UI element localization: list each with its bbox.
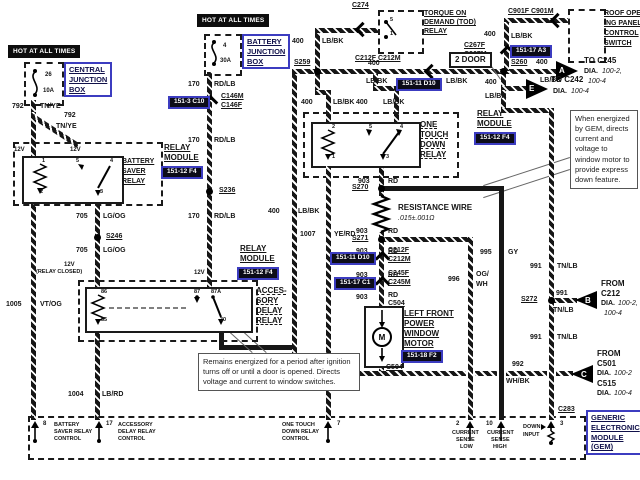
voltage-note: (RELAY CLOSED) — [36, 270, 82, 276]
tod-relay-label: TORQUE ON — [424, 10, 466, 17]
dia-ref: 100-4 — [614, 390, 632, 397]
splice-dot — [206, 188, 213, 195]
wire-number: 170 — [188, 213, 200, 220]
wire-color: RD/LB — [214, 213, 235, 220]
wire-segment — [95, 329, 100, 420]
wire-color: LG/OG — [103, 247, 126, 254]
label-line: BATTERY — [247, 37, 285, 47]
wire-segment — [292, 74, 297, 374]
resistance-wire-icon — [371, 196, 391, 232]
splice-label: S259 — [294, 59, 310, 66]
wire-color: LB/RD — [102, 391, 123, 398]
arrow-letter: B — [585, 296, 591, 305]
arrow-dest: FROM — [597, 350, 621, 358]
wire-number: 992 — [512, 361, 524, 368]
fuse-rating: 10A — [43, 88, 54, 94]
wire-color: RD — [388, 272, 398, 279]
gem-pin-label: BATTERY — [54, 423, 79, 429]
wire-color: RD/LB — [214, 137, 235, 144]
wire-color: LB/BK — [511, 33, 532, 40]
dia-ref: 100-2 — [614, 370, 632, 377]
wire-color: OG/ — [476, 271, 489, 278]
label-line: JUNCTION — [69, 75, 107, 85]
wire-segment-solid — [499, 186, 504, 420]
grid-ref-tag: 151-12 F4 — [161, 166, 203, 179]
splice-label: S260 — [511, 59, 527, 66]
accessory-delay-relay-label: DELAY — [256, 307, 282, 315]
gem-pin-hook-icon — [322, 419, 334, 443]
relay-module-label: MODULE — [164, 154, 199, 162]
fuse-number: 4 — [223, 43, 226, 49]
arrow-letter: C — [581, 370, 587, 379]
connector-label: C146M — [221, 93, 244, 100]
wire-number: 400 — [356, 99, 368, 106]
wire-color: WH — [476, 281, 488, 288]
connector-label: C274 — [352, 2, 369, 9]
label-line: MODULE — [591, 433, 640, 443]
hot-at-all-times-banner: HOT AT ALL TIMES — [197, 14, 269, 27]
gem-pin-label: CURRENT — [452, 431, 479, 437]
splice-dot — [314, 68, 321, 75]
relay-pin: 87A — [211, 290, 221, 296]
grid-ref-tag: 151-17 C1 — [334, 277, 376, 290]
connector-chevron-icon — [355, 22, 371, 38]
gem-pin-number: 17 — [106, 421, 113, 427]
splice-dot — [500, 68, 507, 75]
resistance-wire-value: .015±.001Ω — [398, 215, 434, 222]
voltage-label: 12V — [64, 262, 75, 268]
splice-label: S270 — [352, 184, 368, 191]
tod-relay-label: DEMAND (TOD) — [424, 19, 476, 26]
grid-ref-tag: 151-11 D10 — [396, 78, 442, 91]
dia-arrow-b: B — [575, 291, 597, 309]
relay-module-label: MODULE — [240, 255, 275, 263]
gem-pin-number: 3 — [560, 421, 563, 427]
wiring-diagram: HOT AT ALL TIMES CENTRAL JUNCTION BOX 26… — [0, 0, 640, 480]
one-touch-note: When energized by GEM, directs current a… — [570, 110, 638, 189]
connector-label: C245M — [388, 279, 411, 286]
wire-number: 1004 — [68, 391, 84, 398]
one-touch-relay-label: TOUCH — [420, 131, 448, 139]
roof-switch-label: ING PANEL — [604, 20, 640, 27]
relay-pin: 87 — [194, 290, 200, 296]
wire-color: RD — [388, 178, 398, 185]
relay-internals-icon — [378, 10, 420, 50]
relay-pin: 2 — [332, 125, 335, 131]
relay-pin: 1 — [332, 155, 335, 161]
one-touch-relay-label: DOWN — [420, 141, 445, 149]
arrow-dest: C501 — [597, 360, 616, 368]
roof-switch-label: ROOF OPEN- — [604, 10, 640, 17]
arrow-dest: C515 — [597, 380, 616, 388]
gem-pin-label: ONE TOUCH — [282, 423, 315, 429]
relay-pin: 5 — [390, 18, 393, 24]
gem-pin-label: SENSE — [456, 438, 475, 444]
arrow-dest: TO C245 — [584, 57, 616, 65]
fuse-rating: 30A — [220, 58, 231, 64]
gem-pin-number: 10 — [486, 421, 493, 427]
battery-saver-relay-label: BATTERY — [122, 158, 154, 165]
accessory-delay-relay-label: SORY — [256, 297, 278, 305]
wire-color: LB/BK — [485, 93, 506, 100]
wire-segment — [207, 100, 212, 290]
splice-dot — [94, 234, 101, 241]
arrow-dest: C212 — [601, 290, 620, 298]
gem-pin-label: SAVER RELAY — [54, 430, 92, 436]
dia-ref: 100-4 — [588, 78, 606, 85]
dia-label: DIA. — [597, 390, 611, 397]
wire-number: 792 — [12, 103, 24, 110]
two-door-callout: 2 DOOR — [449, 52, 492, 68]
wire-number: 991 — [530, 263, 542, 270]
wire-segment — [501, 108, 554, 113]
relay-pin: 4 — [110, 159, 113, 165]
wire-number: 705 — [76, 247, 88, 254]
gem-pin-label: HIGH — [493, 445, 507, 451]
one-touch-relay-label: RELAY — [420, 151, 446, 159]
wire-color: RD — [388, 248, 398, 255]
label-line: (GEM) — [591, 442, 640, 452]
relay-pin: 3 — [386, 155, 389, 161]
relay-pin: 5 — [76, 159, 79, 165]
roof-panel-switch-box — [568, 9, 606, 63]
relay-pin: 5 — [369, 125, 372, 131]
relay-pin: 4 — [400, 125, 403, 131]
accessory-delay-relay-label: ACCES- — [256, 287, 287, 295]
label-line: BOX — [247, 57, 285, 67]
connector-label: C504 — [386, 364, 403, 371]
label-line: ELECTRONIC — [591, 423, 640, 433]
wire-color: YE/RD — [334, 231, 355, 238]
motor-label: POWER — [404, 320, 434, 328]
wire-color: LB/BK — [446, 78, 467, 85]
relay-pin: 2 — [40, 190, 43, 196]
hot-at-all-times-banner: HOT AT ALL TIMES — [8, 45, 80, 58]
grid-ref-tag: 151-12 F4 — [474, 132, 516, 145]
wire-number: 792 — [64, 112, 76, 119]
gem-pin-label: ACCESSORY — [118, 423, 153, 429]
gem-pin-hook-icon — [29, 419, 41, 443]
gem-pin-number: 2 — [456, 421, 459, 427]
fuse-icon — [207, 39, 221, 67]
connector-label: C267F — [464, 42, 485, 49]
splice-dot — [548, 297, 555, 304]
battery-junction-box-label: BATTERY JUNCTION BOX — [242, 34, 290, 69]
wire-color: RD/LB — [214, 81, 235, 88]
gem-pin-label: CONTROL — [118, 437, 145, 443]
dia-ref: 100-4 — [604, 310, 622, 317]
gem-pin-label: CONTROL — [282, 437, 309, 443]
wire-number: 903 — [358, 178, 370, 185]
wire-number: 400 — [292, 38, 304, 45]
relay-pin: 3 — [100, 190, 103, 196]
splice-label: S272 — [521, 296, 537, 303]
relay-pin: 1 — [390, 32, 393, 38]
relay-pin: 86 — [101, 290, 107, 296]
dia-label: DIA. — [601, 300, 615, 307]
connector-label: C901F C901M — [508, 8, 554, 15]
wire-number: 170 — [188, 137, 200, 144]
wire-number: 400 — [485, 79, 497, 86]
roof-switch-label: CONTROL — [604, 30, 639, 37]
label-line: BOX — [69, 85, 107, 95]
tod-relay-label: RELAY — [424, 28, 447, 35]
dia-arrow-c: C — [571, 365, 593, 383]
resistance-wire-label: RESISTANCE WIRE — [398, 204, 472, 212]
wire-color: TN/LB — [553, 307, 574, 314]
dia-arrow-e: E — [526, 79, 548, 99]
accessory-relay-note: Remains energized for a period after ign… — [198, 353, 360, 391]
dia-label: DIA. — [597, 370, 611, 377]
connector-label: C504 — [388, 300, 405, 307]
wire-color: TN/YE — [56, 123, 77, 130]
down-input-arrow-icon — [541, 424, 546, 430]
relay-pin: 85 — [101, 318, 107, 324]
gem-pin-hook-icon — [545, 419, 557, 445]
wire-number: 400 — [484, 31, 496, 38]
label-line: GENERIC — [591, 413, 640, 423]
motor-icon: M — [364, 306, 400, 364]
arrow-dest: TO C242 — [551, 76, 583, 84]
wire-color: WH/BK — [506, 378, 530, 385]
wire-color: LB/BK — [298, 208, 319, 215]
arrow-dest: FROM — [601, 280, 625, 288]
wire-color: TN/YE — [40, 103, 61, 110]
roof-switch-label: SWITCH — [604, 40, 632, 47]
wire-number: 991 — [556, 290, 568, 297]
motor-label: WINDOW — [404, 330, 439, 338]
motor-label: LEFT FRONT — [404, 310, 454, 318]
wire-color: LB/BK — [366, 78, 387, 85]
wire-number: 991 — [530, 334, 542, 341]
wire-number: 903 — [356, 228, 368, 235]
connector-chevron-icon — [550, 13, 566, 29]
wire-segment — [95, 200, 100, 290]
wire-number: 170 — [188, 81, 200, 88]
arrow-letter: E — [529, 84, 534, 93]
connector-chevron-icon — [424, 64, 440, 80]
gem-pin-label: SENSE — [491, 438, 510, 444]
wire-number: 400 — [368, 60, 380, 67]
wire-color: RD — [388, 292, 398, 299]
arrow-letter: A — [559, 66, 565, 75]
splice-label: S246 — [106, 233, 122, 240]
label-line: CENTRAL — [69, 65, 107, 75]
wire-number: 1007 — [300, 231, 316, 238]
wire-segment — [381, 237, 471, 242]
wire-color: LB/BK — [383, 99, 404, 106]
dia-ref: 100-2, — [618, 300, 638, 307]
wire-number: 705 — [76, 213, 88, 220]
accessory-delay-relay-label: RELAY — [256, 317, 282, 325]
gem-pin-number: 7 — [337, 421, 340, 427]
grid-ref-tag: 151-11 D10 — [330, 252, 376, 265]
splice-label: S236 — [219, 187, 235, 194]
note-pointer-line — [483, 169, 570, 198]
wire-number: 995 — [480, 249, 492, 256]
wire-color: LB/BK — [322, 38, 343, 45]
grid-ref-tag: 151-12 F4 — [237, 267, 279, 280]
splice-dot — [378, 185, 385, 192]
grid-ref-tag: 151-17 A3 — [510, 45, 552, 58]
wire-number: 400 — [268, 208, 280, 215]
wire-number: 400 — [536, 59, 548, 66]
wire-segment — [549, 108, 554, 420]
wire-segment-solid — [381, 186, 503, 191]
battery-saver-relay-label: RELAY — [122, 178, 145, 185]
wire-number: 400 — [301, 99, 313, 106]
relay-module-label: MODULE — [477, 120, 512, 128]
dia-ref: 100-2, — [602, 68, 622, 75]
gem-label: GENERIC ELECTRONIC MODULE (GEM) — [586, 410, 640, 455]
relay-internals-icon — [22, 156, 120, 200]
fuse-icon — [28, 68, 42, 98]
wire-color: GY — [508, 249, 518, 256]
wire-number: 1005 — [6, 301, 22, 308]
gem-pin-label: LOW — [460, 445, 473, 451]
central-junction-box-label: CENTRAL JUNCTION BOX — [64, 62, 112, 97]
gem-pin-label: CONTROL — [54, 437, 81, 443]
dia-label: DIA. — [553, 88, 567, 95]
connector-label: C146F — [221, 102, 242, 109]
connector-label: C283 — [558, 406, 575, 413]
connector-label: C212M — [388, 256, 411, 263]
wire-segment — [315, 28, 320, 71]
wire-segment — [379, 232, 384, 308]
gem-pin-label: DOWN — [523, 425, 540, 431]
gem-pin-label: DOWN RELAY — [282, 430, 319, 436]
grid-ref-tag: 151-18 F2 — [401, 350, 443, 363]
wire-color: VT/OG — [40, 301, 62, 308]
relay-pin: 30 — [220, 318, 226, 324]
motor-label: MOTOR — [404, 340, 434, 348]
voltage-label: 12V — [194, 270, 205, 276]
wire-color: LG/OG — [103, 213, 126, 220]
relay-module-label: RELAY — [164, 144, 190, 152]
gem-pin-label: DELAY RELAY — [118, 430, 156, 436]
wire-number: 903 — [356, 294, 368, 301]
wire-color: TN/LB — [557, 263, 578, 270]
relay-module-label: RELAY — [477, 110, 503, 118]
battery-saver-relay-label: SAVER — [122, 168, 146, 175]
dia-label: DIA. — [584, 68, 598, 75]
wire-segment — [31, 200, 36, 420]
relay-module-label: RELAY — [240, 245, 266, 253]
grid-ref-tag: 151-3 C10 — [168, 96, 210, 109]
wire-number: 996 — [448, 276, 460, 283]
splice-dot — [378, 236, 385, 243]
wire-color: RD — [388, 228, 398, 235]
gem-pin-number: 8 — [43, 421, 46, 427]
label-line: JUNCTION — [247, 47, 285, 57]
wire-color: TN/LB — [557, 334, 578, 341]
motor-m: M — [379, 333, 386, 342]
relay-pin: 1 — [42, 159, 45, 165]
wire-color: LB/BK — [333, 99, 354, 106]
gem-pin-label: CURRENT — [487, 431, 514, 437]
one-touch-relay-label: ONE — [420, 121, 437, 129]
fuse-number: 26 — [45, 72, 52, 78]
voltage-label: 12V — [14, 147, 25, 153]
dia-ref: 100-4 — [571, 88, 589, 95]
gem-pin-label: INPUT — [523, 433, 540, 439]
wire-segment — [468, 237, 473, 420]
gem-pin-hook-icon — [93, 419, 105, 443]
voltage-label: 12V — [70, 147, 81, 153]
